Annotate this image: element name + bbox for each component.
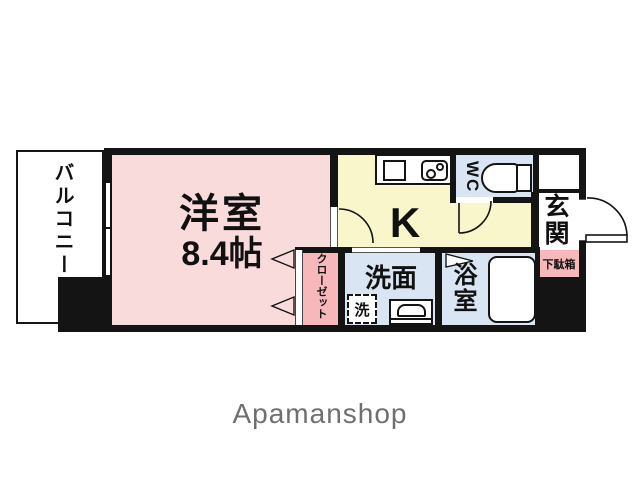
kitchen-label: K: [350, 199, 460, 247]
western-room-label: 洋室 8.4帖: [112, 193, 332, 273]
closet-label: クローゼット: [313, 253, 329, 327]
western-room-size: 8.4帖: [112, 236, 332, 273]
closet-folding-door-bottom: [272, 297, 294, 315]
wc-label: WC: [458, 154, 482, 200]
entrance-door-arc: [587, 198, 627, 235]
washroom-label: 洗面: [345, 258, 437, 295]
apamanshop-logo: Apamanshop: [0, 398, 640, 430]
shoe-box-label: 下駄箱: [539, 250, 579, 277]
wc-door-arc: [459, 201, 491, 233]
bathroom-label: 浴室: [452, 262, 480, 324]
entrance-door-leaf: [586, 235, 627, 242]
western-room-name: 洋室: [112, 193, 332, 236]
floorplan-image: 洗 バルコニー 洋室 8.4帖 K WC 玄関 下駄箱 クローゼット 洗面 浴室…: [0, 0, 640, 480]
entrance-label: 玄関: [545, 193, 573, 251]
balcony-label: バルコニー: [48, 162, 77, 287]
